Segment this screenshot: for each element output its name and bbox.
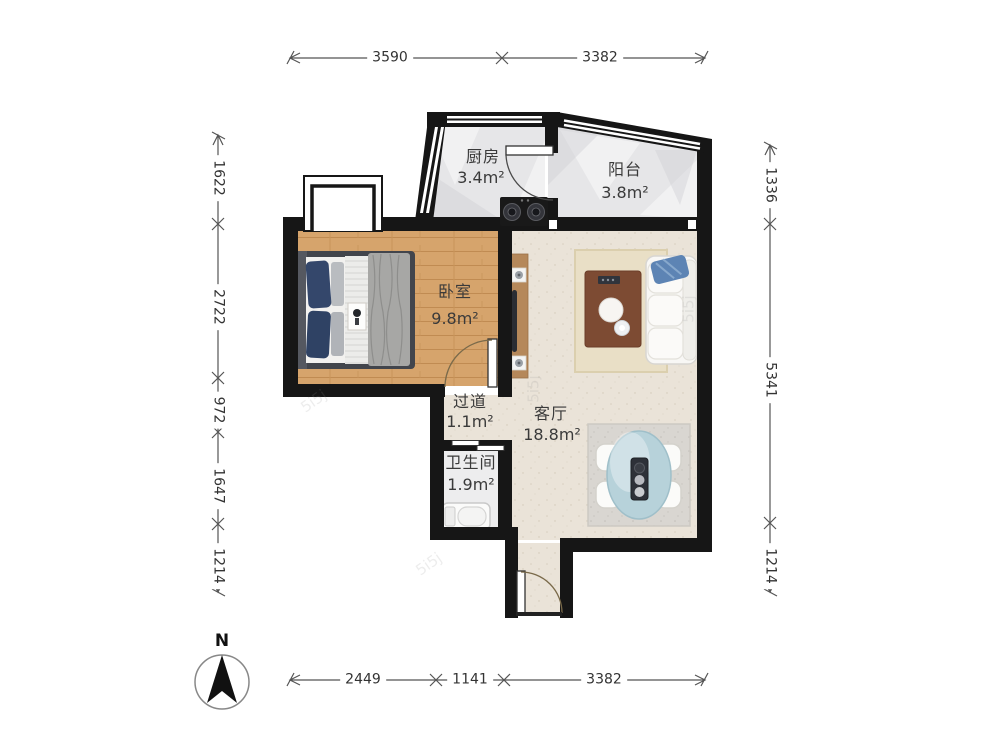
room-label-kitchen: 厨房: [466, 149, 500, 165]
watermark: 5i5j: [525, 375, 543, 402]
entry-threshold: [516, 612, 562, 616]
toilet: [442, 503, 490, 530]
room-area-living: 18.8m²: [523, 427, 581, 443]
room-label-bathroom: 卫生间: [445, 455, 496, 471]
stove: [500, 197, 548, 226]
wall-right: [697, 139, 712, 552]
wall-hall-bath-left: [430, 384, 444, 540]
bed: [294, 251, 415, 369]
room-label-balcony: 阳台: [608, 162, 642, 178]
dim-right-2: 5341: [762, 357, 777, 403]
north-arrow-icon: [195, 655, 249, 709]
coffee-table: [585, 271, 641, 347]
dim-right-3: 1214: [762, 543, 777, 589]
watermark: 5i5j: [680, 295, 698, 322]
dim-left-5: 1214: [210, 543, 225, 589]
dim-bottom-1: 2449: [340, 672, 386, 687]
room-label-living: 客厅: [534, 406, 568, 422]
dining-set: [596, 431, 681, 519]
room-label-bedroom: 卧室: [438, 284, 472, 300]
dim-bottom-2: 1141: [447, 672, 493, 687]
dim-right-1: 1336: [762, 162, 777, 208]
dim-top-1: 3590: [367, 50, 413, 65]
wall-bedroom-left: [283, 217, 298, 397]
dim-left-2: 2722: [210, 284, 225, 330]
wall-living-bottom: [560, 538, 712, 552]
north-label: N: [215, 631, 229, 651]
jamb-mark-right: [688, 220, 696, 229]
bay-window: [304, 176, 382, 231]
dim-left-4: 1647: [210, 463, 225, 509]
dim-bottom-3: 3382: [581, 672, 627, 687]
tv-console: [510, 254, 528, 378]
room-label-hallway: 过道: [453, 394, 487, 410]
wall-corridor-left: [505, 540, 518, 618]
tv: [512, 290, 517, 352]
room-area-bathroom: 1.9m²: [447, 477, 494, 493]
floorplan-stage: 厨房 3.4m² 阳台 3.8m² 卧室 9.8m² 过道 1.1m² 客厅 1…: [0, 0, 1000, 750]
jamb-mark-left: [549, 220, 557, 229]
dim-left-3: 972: [210, 392, 225, 429]
room-area-hallway: 1.1m²: [446, 414, 493, 430]
floorplan-drawing: [0, 0, 1000, 750]
room-area-bedroom: 9.8m²: [431, 311, 478, 327]
room-area-kitchen: 3.4m²: [457, 170, 504, 186]
room-area-balcony: 3.8m²: [601, 185, 648, 201]
wall-bathroom-right: [498, 442, 512, 540]
wall-bedroom-living-divider: [498, 217, 512, 397]
dim-left-1: 1622: [210, 155, 225, 201]
dim-top-2: 3382: [577, 50, 623, 65]
